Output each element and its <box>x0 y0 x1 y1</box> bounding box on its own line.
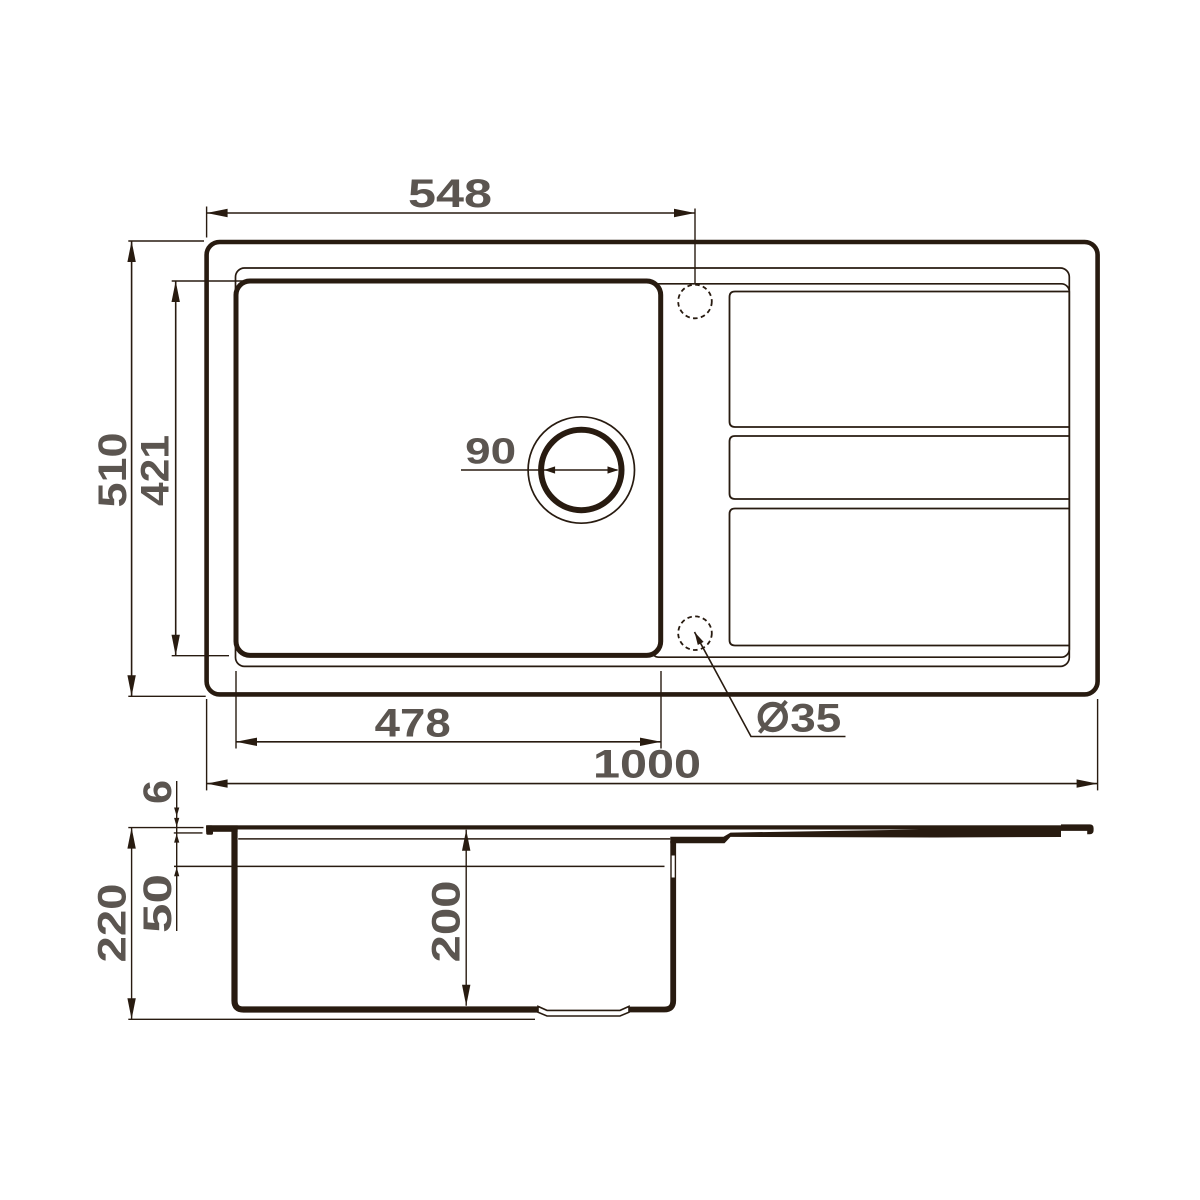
svg-text:548: 548 <box>408 172 492 216</box>
svg-text:1000: 1000 <box>593 742 701 786</box>
svg-text:6: 6 <box>136 780 180 804</box>
svg-text:200: 200 <box>425 881 469 963</box>
svg-text:421: 421 <box>134 435 178 506</box>
svg-text:510: 510 <box>91 433 135 508</box>
svg-text:35: 35 <box>790 697 841 741</box>
svg-text:90: 90 <box>465 430 516 471</box>
svg-text:478: 478 <box>375 702 451 746</box>
svg-text:220: 220 <box>91 884 135 963</box>
svg-text:50: 50 <box>136 874 180 933</box>
